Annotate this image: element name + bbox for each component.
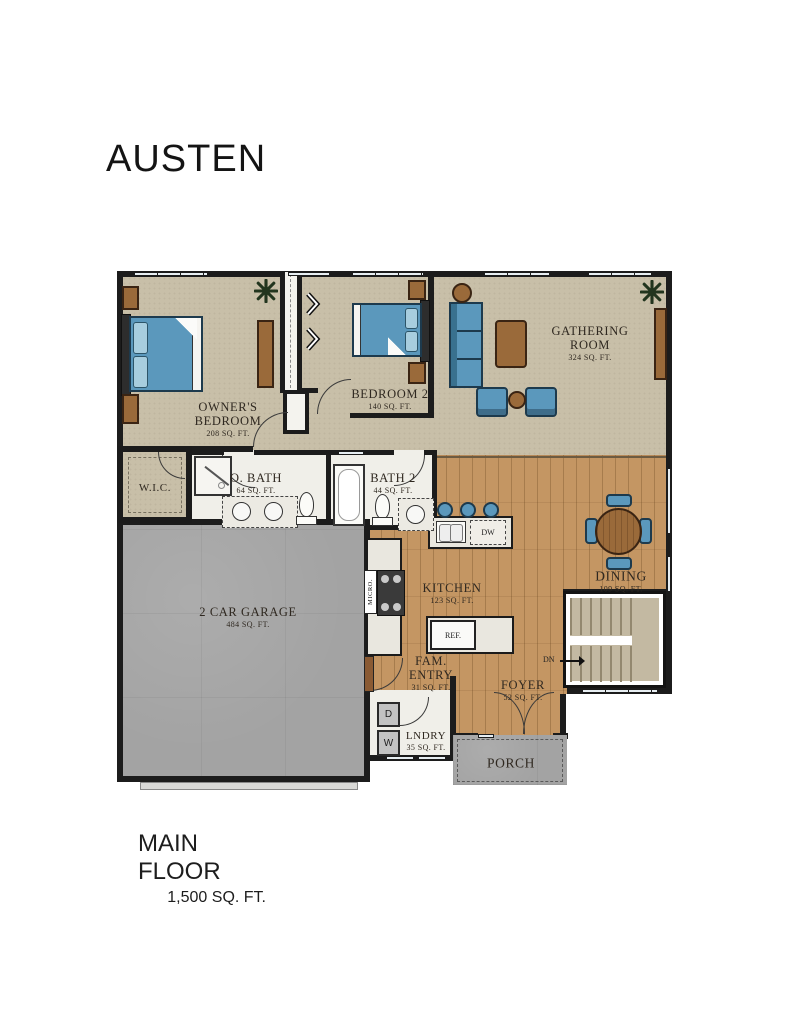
side-table [508,391,526,409]
label-garage: 2 CAR GARAGE 484 SQ. FT. [173,605,323,629]
window [288,272,330,276]
armchair [476,387,508,417]
coffee-table [495,320,527,368]
refrigerator: REF. [430,620,476,650]
bed [352,303,422,357]
label-gathering-room: GATHERING ROOM 324 SQ. FT. [535,324,645,362]
window [478,734,494,738]
label-owners-bedroom: OWNER'S BEDROOM 208 SQ. FT. [180,400,276,438]
toilet [299,492,314,517]
window [352,272,424,276]
console-table [654,308,667,380]
kitchen-sink [436,521,466,543]
room-garage-floor [117,519,370,782]
floor-name: MAIN FLOOR [138,830,266,886]
nightstand [408,280,426,300]
door-leaf-garage [364,656,374,692]
plant-icon [254,279,278,303]
microwave-label: MICRO. [367,579,374,605]
toilet-tank [372,517,393,526]
window [667,468,671,534]
window [386,756,414,760]
window [338,451,364,455]
bed [129,316,203,392]
closet-rod-icon [305,327,321,351]
window [418,756,446,760]
nightstand [122,286,139,310]
floor-area: 1,500 SQ. FT. [138,889,266,907]
window [667,556,671,592]
label-wic: W.I.C. [120,482,190,494]
dishwasher: DW [470,520,506,545]
label-kitchen: KITCHEN 123 SQ. FT. [402,581,502,605]
toilet [375,494,390,519]
toilet-tank [296,516,317,525]
dresser [257,320,274,388]
obath-vanity [222,496,298,528]
label-obath: O. BATH 64 SQ. FT. [211,471,301,495]
label-fam-entry: FAM. ENTRY 31 SQ. FT. [399,654,463,692]
label-bedroom2: BEDROOM 2 140 SQ. FT. [335,387,445,411]
dryer: D [377,702,400,727]
dryer-label: D [385,709,392,720]
dining-chair [606,494,632,507]
window [134,272,208,276]
garage-door [140,782,358,790]
sink [406,505,425,524]
plan-footer: MAIN FLOOR 1,500 SQ. FT. [138,830,266,907]
bar-stool [437,502,453,518]
sink [264,502,283,521]
stairs-down-arrow [560,660,580,662]
dining-table [595,508,642,555]
nightstand [408,362,426,384]
closet-rod-icon [305,292,321,316]
label-foyer: FOYER 52 SQ. FT. [483,678,563,702]
window [582,689,658,693]
stairs-down-label: DN [543,655,555,664]
label-bath2: BATH 2 44 SQ. FT. [353,471,433,495]
label-dining: DINING 109 SQ. FT. [576,568,666,593]
label-laundry: LNDRY 35 SQ. FT. [391,730,461,752]
plant-icon [640,280,664,304]
window [588,272,652,276]
label-porch: PORCH [466,755,556,770]
floorplan-page: AUSTEN DN [0,0,791,1024]
window [484,272,550,276]
bath2-vanity [398,498,434,531]
side-table [452,283,472,303]
dishwasher-label: DW [481,528,494,537]
armchair [525,387,557,417]
sink [232,502,251,521]
microwave-shelf: MICRO. [364,570,377,614]
bar-stool [483,502,499,518]
bar-stool [460,502,476,518]
refrigerator-label: REF. [445,631,461,640]
plan-title: AUSTEN [106,138,266,181]
sofa [449,302,483,388]
nightstand [122,394,139,424]
range [377,570,405,616]
